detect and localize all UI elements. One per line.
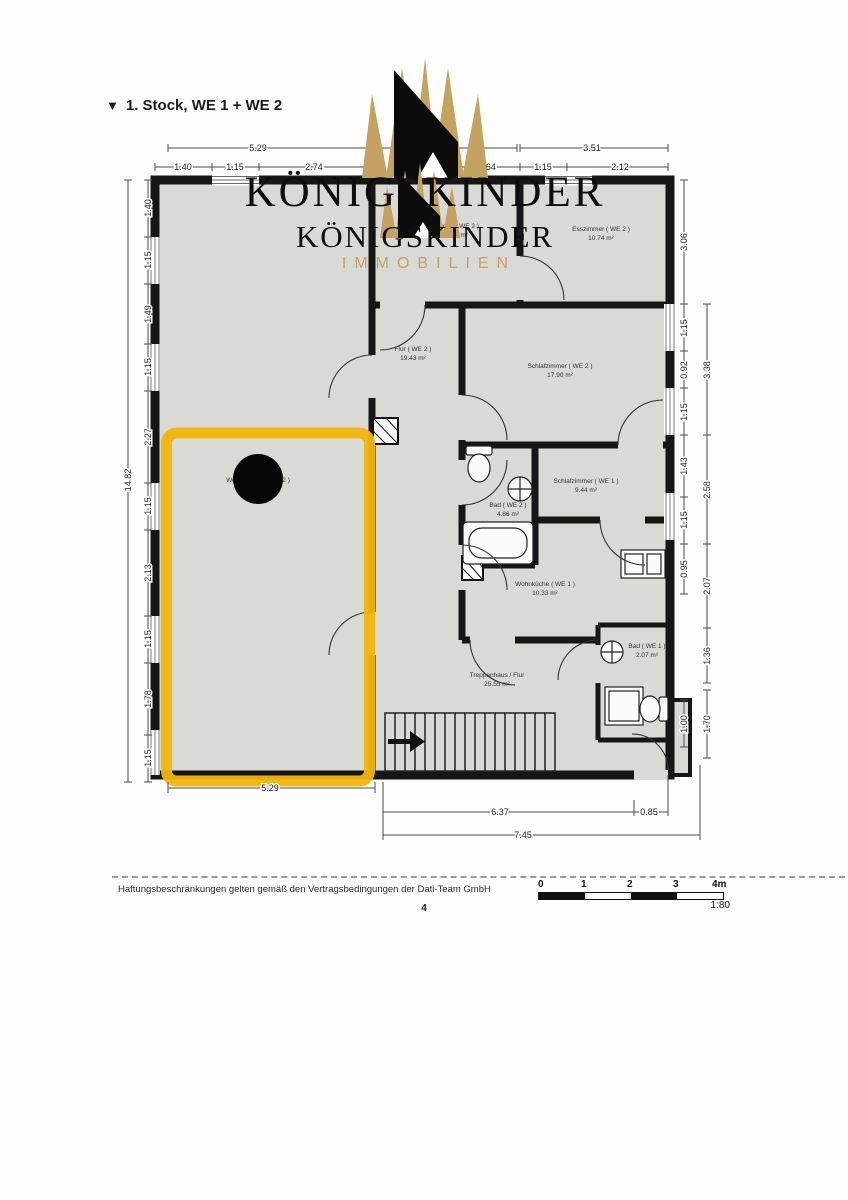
svg-text:2.27: 2.27 <box>143 428 153 446</box>
svg-text:5.29: 5.29 <box>249 143 267 153</box>
svg-text:1.78: 1.78 <box>143 690 153 708</box>
svg-text:Bad ( WE 1 ): Bad ( WE 1 ) <box>628 643 665 650</box>
svg-text:2.58: 2.58 <box>702 481 712 499</box>
svg-text:2.13: 2.13 <box>143 564 153 582</box>
svg-text:Schlafzimmer ( WE 2 ): Schlafzimmer ( WE 2 ) <box>527 363 592 370</box>
scale-bar: 0 1 2 3 4m 1:80 <box>538 879 730 913</box>
svg-text:Wohnküche ( WE 1 ): Wohnküche ( WE 1 ) <box>515 581 575 588</box>
scanned-floorplan-page: ▼1. Stock, WE 1 + WE 2 <box>0 0 848 1200</box>
scale-bar-ruler <box>538 892 724 900</box>
scale-tick-label: 2 <box>627 879 633 890</box>
svg-text:1.49: 1.49 <box>143 305 153 323</box>
svg-text:2.07 m²: 2.07 m² <box>636 652 659 659</box>
svg-text:Bad ( WE 2 ): Bad ( WE 2 ) <box>489 502 526 509</box>
svg-text:9.44 m²: 9.44 m² <box>575 487 598 494</box>
svg-text:0.95: 0.95 <box>679 560 689 578</box>
scale-tick-label: 0 <box>538 879 544 890</box>
svg-text:4.86 m²: 4.86 m² <box>497 511 520 518</box>
svg-text:Esszimmer ( WE 2 ): Esszimmer ( WE 2 ) <box>572 226 630 233</box>
scale-ratio: 1:80 <box>711 900 730 911</box>
svg-text:1.15: 1.15 <box>679 511 689 529</box>
footer-disclaimer: Haftungsbeschränkungen gelten gemäß den … <box>118 884 491 895</box>
svg-text:1.15: 1.15 <box>679 403 689 421</box>
toilet-icon <box>466 446 492 482</box>
svg-text:0.92: 0.92 <box>679 361 689 379</box>
svg-text:Treppenhaus / Flur: Treppenhaus / Flur <box>470 672 526 679</box>
svg-text:Flur ( WE 2 ): Flur ( WE 2 ) <box>395 346 432 353</box>
svg-text:14.82: 14.82 <box>123 469 133 492</box>
svg-text:25.55 m²: 25.55 m² <box>484 681 510 688</box>
svg-text:2.07: 2.07 <box>702 577 712 595</box>
shower-icon <box>605 687 643 725</box>
kitchen-sink-icon <box>621 550 665 578</box>
svg-text:10.74 m²: 10.74 m² <box>588 235 614 242</box>
scale-tick-label: 3 <box>673 879 679 890</box>
watermark-brand-subtitle: IMMOBILIEN <box>342 255 516 272</box>
watermark-brand-secondary: KÖNIGSKINDER <box>296 219 554 254</box>
svg-text:17.90 m²: 17.90 m² <box>547 372 573 379</box>
svg-text:1.15: 1.15 <box>143 251 153 269</box>
svg-text:3.51: 3.51 <box>583 143 601 153</box>
svg-text:7.45: 7.45 <box>514 830 532 840</box>
svg-text:1.15: 1.15 <box>143 630 153 648</box>
svg-text:1.40: 1.40 <box>143 199 153 217</box>
svg-text:1.15: 1.15 <box>679 319 689 337</box>
scale-tick-label: 4m <box>712 879 726 890</box>
svg-text:3.06: 3.06 <box>679 233 689 251</box>
floorplan: Küche ( WE 2 )5.02 m² Esszimmer ( WE 2 )… <box>0 0 848 1200</box>
svg-text:3.38: 3.38 <box>702 361 712 379</box>
footer-divider <box>112 876 845 878</box>
svg-text:1.70: 1.70 <box>702 715 712 733</box>
svg-text:5.29: 5.29 <box>261 783 279 793</box>
svg-text:1.15: 1.15 <box>143 497 153 515</box>
bathtub-icon <box>463 522 533 564</box>
redaction-dot <box>233 454 283 504</box>
sink-icon <box>508 477 532 501</box>
svg-text:2.12: 2.12 <box>611 162 629 172</box>
svg-text:1.36: 1.36 <box>702 647 712 665</box>
svg-text:Schlafzimmer ( WE 1 ): Schlafzimmer ( WE 1 ) <box>553 478 618 485</box>
sink-icon <box>601 641 623 663</box>
svg-text:1.00: 1.00 <box>679 715 689 733</box>
svg-text:10.33 m²: 10.33 m² <box>532 590 558 597</box>
scale-tick-label: 1 <box>581 879 587 890</box>
toilet-icon <box>640 696 668 722</box>
svg-text:1.15: 1.15 <box>143 358 153 376</box>
crown-logo-icon <box>362 58 488 178</box>
svg-text:1.43: 1.43 <box>679 457 689 475</box>
svg-text:0.85: 0.85 <box>640 807 658 817</box>
svg-text:19.43 m²: 19.43 m² <box>400 355 426 362</box>
svg-text:1.40: 1.40 <box>174 162 192 172</box>
svg-text:1.15: 1.15 <box>226 162 244 172</box>
svg-text:6.37: 6.37 <box>491 807 509 817</box>
svg-text:1.15: 1.15 <box>143 749 153 767</box>
staircase <box>385 713 555 771</box>
page-number: 4 <box>414 903 434 914</box>
